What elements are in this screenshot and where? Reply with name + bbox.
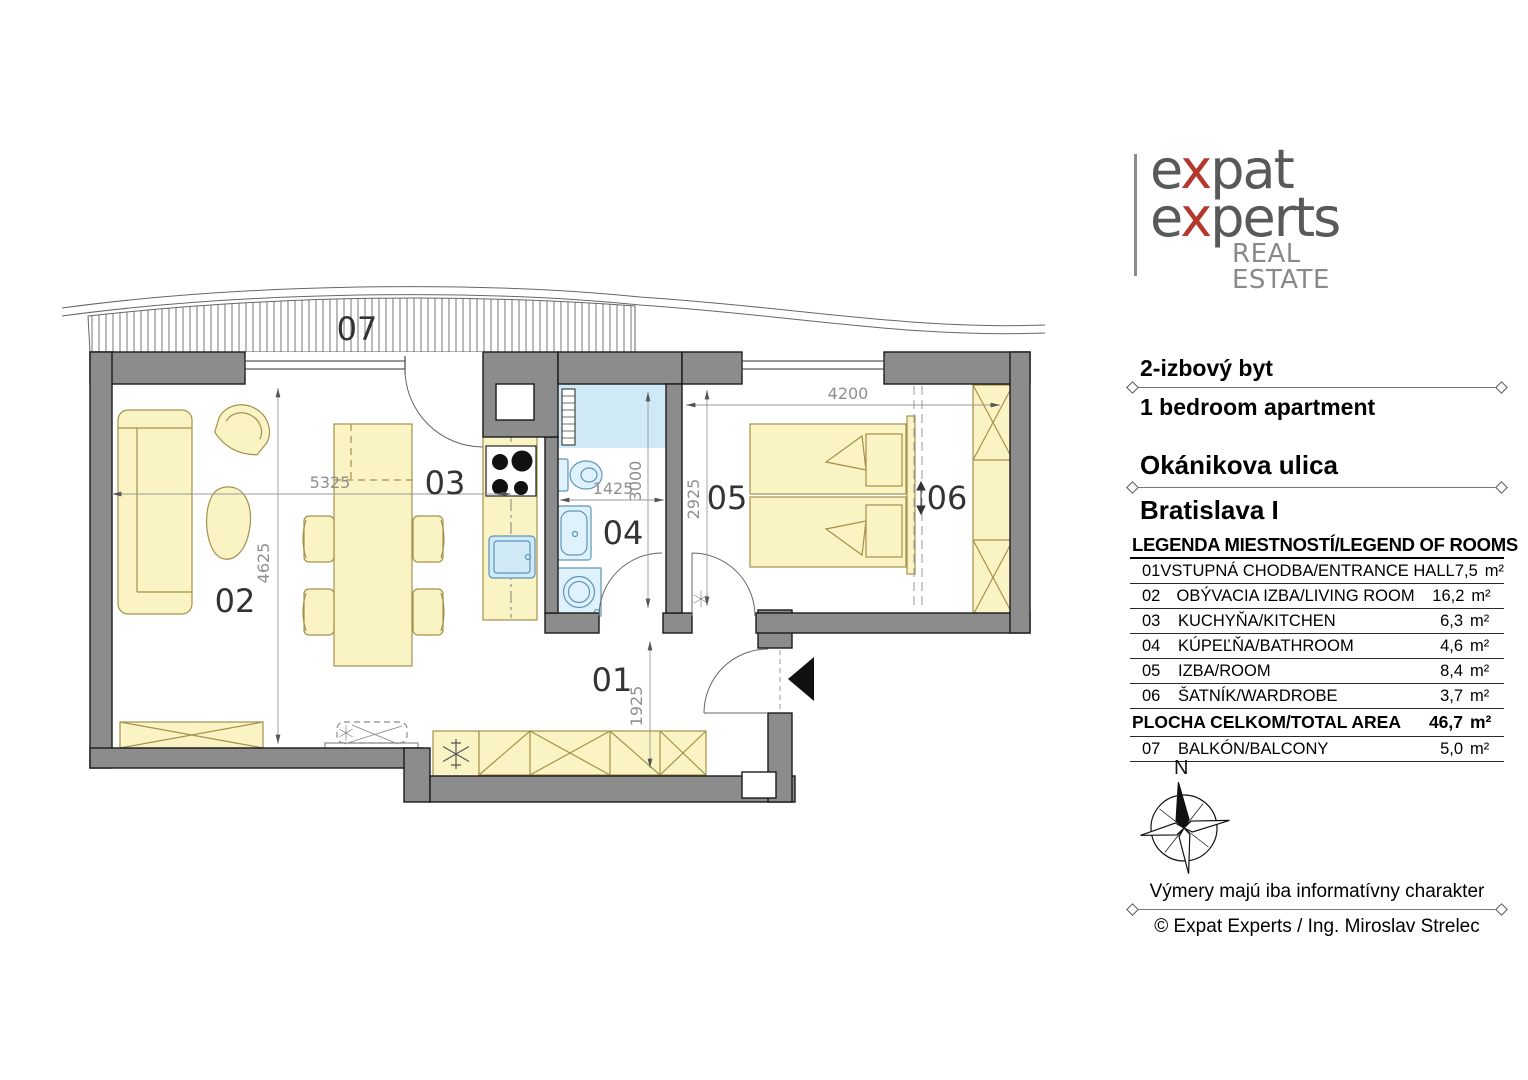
shaft xyxy=(496,384,534,420)
apartment-type-block: 2-izbový byt 1 bedroom apartment xyxy=(1128,354,1506,421)
diamond-icon xyxy=(1495,903,1508,916)
room-label-05: 05 xyxy=(707,479,748,517)
compass-icon: N xyxy=(1132,756,1242,884)
copyright-text: © Expat Experts / Ing. Miroslav Strelec xyxy=(1128,915,1506,939)
logo-wordmark: expat experts xyxy=(1150,146,1394,241)
sofa xyxy=(118,410,192,614)
diamond-icon xyxy=(1495,481,1508,494)
divider-line xyxy=(1128,905,1506,914)
room-label-03: 03 xyxy=(425,464,466,502)
wardrobe-06 xyxy=(973,385,1013,615)
floor-plan-sheet: expat 07 xyxy=(0,0,1528,1080)
legend-row: 03KUCHYŇA/KITCHEN6,3m² xyxy=(1130,609,1504,634)
legend-row: 01VSTUPNÁ CHODBA/ENTRANCE HALL7,5m² xyxy=(1130,559,1504,584)
room-label-01: 01 xyxy=(592,661,633,699)
fridge xyxy=(433,731,479,777)
dining-chair xyxy=(303,589,334,635)
legend-row: 02OBÝVACIA IZBA/LIVING ROOM16,2m² xyxy=(1130,584,1504,609)
bathroom-sink xyxy=(557,506,591,560)
divider-line xyxy=(1128,383,1506,392)
diamond-icon xyxy=(1126,481,1139,494)
footer: Výmery majú iba informatívny charakter ©… xyxy=(1128,880,1506,939)
floor-plan: expat 07 xyxy=(0,0,1070,1080)
diamond-icon xyxy=(1126,903,1139,916)
dim-5325: 5325 xyxy=(310,473,351,492)
address-block: Okánikova ulica Bratislava I xyxy=(1128,448,1506,527)
legend-row: 05IZBA/ROOM8,4m² xyxy=(1130,659,1504,684)
dining-chair xyxy=(413,516,444,562)
street-name: Okánikova ulica xyxy=(1128,448,1506,482)
hall-wardrobe xyxy=(479,731,706,775)
dim-4625: 4625 xyxy=(254,543,273,584)
dim-4200: 4200 xyxy=(828,384,869,403)
radiator xyxy=(562,389,575,445)
legend-table: LEGENDA MIESTNOSTÍ/LEGEND OF ROOMS 01VST… xyxy=(1130,533,1504,762)
logo-bar xyxy=(1134,154,1137,276)
info-panel: expat experts REAL ESTATE 2-izbový byt 1… xyxy=(1128,0,1506,1080)
legend-title: LEGENDA MIESTNOSTÍ/LEGEND OF ROOMS xyxy=(1130,533,1504,559)
room-label-02: 02 xyxy=(215,582,256,620)
room-label-04: 04 xyxy=(603,514,644,552)
apartment-type-en: 1 bedroom apartment xyxy=(1128,393,1506,421)
dining-chair xyxy=(413,589,444,635)
stove xyxy=(486,446,536,496)
washing-machine xyxy=(557,568,601,616)
disclaimer-text: Výmery majú iba informatívny charakter xyxy=(1128,880,1506,904)
dining-table xyxy=(334,424,412,666)
legend-row: 04KÚPEĽŇA/BATHROOM4,6m² xyxy=(1130,634,1504,659)
dim-3000: 3000 xyxy=(626,461,645,502)
kitchen-sink xyxy=(489,536,535,578)
legend-total-row: PLOCHA CELKOM/TOTAL AREA46,7m² xyxy=(1130,709,1504,737)
diamond-icon xyxy=(1126,381,1139,394)
legend-row: 06ŠATNÍK/WARDROBE3,7m² xyxy=(1130,684,1504,709)
room-label-07: 07 xyxy=(337,310,378,348)
district-name: Bratislava I xyxy=(1128,493,1506,527)
diamond-icon xyxy=(1495,381,1508,394)
compass-north-label: N xyxy=(1174,757,1188,779)
divider-line xyxy=(1128,483,1506,492)
sideboard xyxy=(120,722,263,748)
dim-2925: 2925 xyxy=(684,479,703,520)
shaft xyxy=(742,772,776,798)
room-label-06: 06 xyxy=(927,479,968,517)
logo: expat experts REAL ESTATE xyxy=(1134,146,1394,293)
dining-chair xyxy=(303,516,334,562)
apartment-type-sk: 2-izbový byt xyxy=(1128,354,1506,382)
logo-subtitle: REAL ESTATE xyxy=(1232,241,1394,293)
balcony: 07 xyxy=(88,298,635,352)
